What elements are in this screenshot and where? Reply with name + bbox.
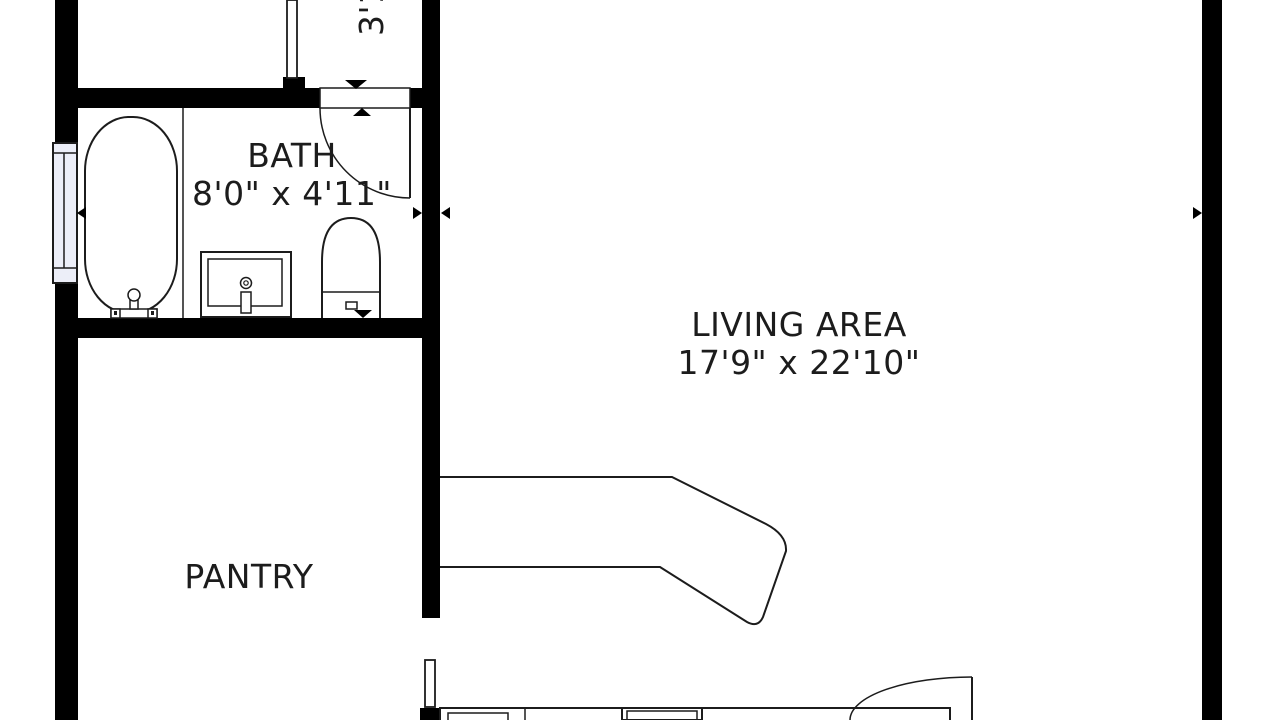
pantry-door-leaf <box>425 660 435 707</box>
sink-faucet <box>241 292 251 313</box>
dishwasher-front <box>448 713 508 720</box>
entry-door <box>850 677 972 720</box>
hallway-dimension-label: 3'1 <box>352 0 391 36</box>
floor-plan-graphics <box>0 0 1280 720</box>
bath-door-panel <box>320 88 410 108</box>
sink-drain-inner <box>244 281 248 285</box>
wall-left-upper <box>55 0 78 143</box>
dim-arrow-right-bath <box>413 207 422 219</box>
entry-door-swing-arc <box>850 677 972 720</box>
wall-center-vertical <box>422 0 440 618</box>
dim-arrow-right-living <box>1193 207 1202 219</box>
living-area-dimensions: 17'9" x 22'10" <box>649 344 949 382</box>
window-frame <box>53 143 77 283</box>
bath-window <box>53 143 77 283</box>
room-label-pantry: PANTRY <box>149 558 349 596</box>
stove-inner <box>627 711 697 720</box>
wall-right <box>1202 0 1222 720</box>
wall-bath-top-left <box>55 88 320 108</box>
wall-bath-top-right <box>410 88 422 108</box>
walls <box>55 0 1222 720</box>
stove <box>622 708 702 720</box>
counter-outline <box>440 708 950 720</box>
bathtub <box>85 117 177 313</box>
toilet <box>322 218 380 318</box>
room-label-living-area: LIVING AREA 17'9" x 22'10" <box>649 306 949 382</box>
dim-arrow-up-bath <box>353 108 371 116</box>
sectional-sofa <box>440 477 786 624</box>
tub-faucet-dot-right <box>151 311 154 315</box>
floor-plan: BATH 8'0" x 4'11" LIVING AREA 17'9" x 22… <box>0 0 1280 720</box>
vanity-sink <box>201 252 291 317</box>
wall-bath-bottom <box>55 318 440 338</box>
toilet-flush-button <box>346 302 357 309</box>
bath-dimensions: 8'0" x 4'11" <box>192 175 392 213</box>
bath-name: BATH <box>192 137 392 175</box>
living-area-name: LIVING AREA <box>649 306 949 344</box>
dim-arrow-left-living <box>441 207 450 219</box>
room-label-bath: BATH 8'0" x 4'11" <box>192 137 392 213</box>
dim-arrow-left-bath <box>77 207 86 219</box>
hall-door-leaf <box>287 0 297 78</box>
tub-faucet-dot-left <box>114 311 117 315</box>
kitchen-counter <box>440 708 950 720</box>
wall-kitchen-corner <box>420 708 440 720</box>
pantry-name: PANTRY <box>149 558 349 596</box>
wall-left-lower <box>55 283 78 720</box>
tub-faucet-knob <box>128 289 140 301</box>
